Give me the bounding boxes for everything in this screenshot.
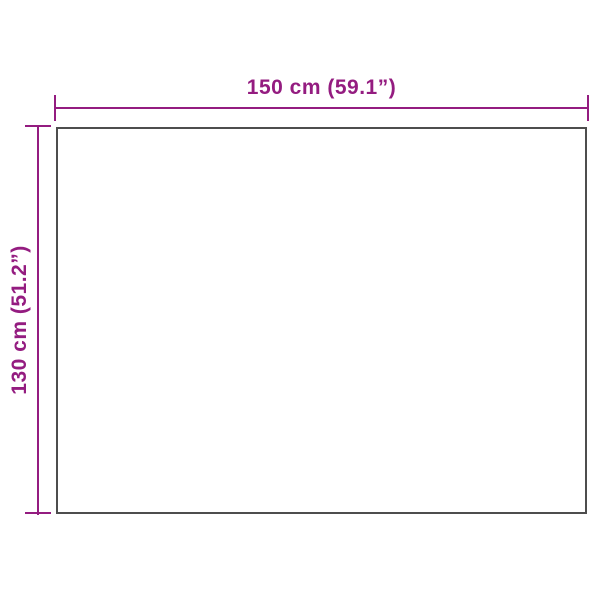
width-dimension-right-tick bbox=[587, 95, 589, 121]
height-dimension-top-tick bbox=[25, 125, 51, 127]
width-dimension-line bbox=[55, 107, 588, 109]
product-outline-rectangle bbox=[56, 127, 587, 514]
height-dimension-bottom-tick bbox=[25, 512, 51, 514]
dimension-diagram: 150 cm (59.1”) 130 cm (51.2”) bbox=[0, 0, 600, 600]
height-dimension-line bbox=[37, 126, 39, 515]
width-dimension-label: 150 cm (59.1”) bbox=[55, 75, 588, 101]
width-dimension-left-tick bbox=[54, 95, 56, 121]
height-dimension-label: 130 cm (51.2”) bbox=[8, 245, 32, 394]
